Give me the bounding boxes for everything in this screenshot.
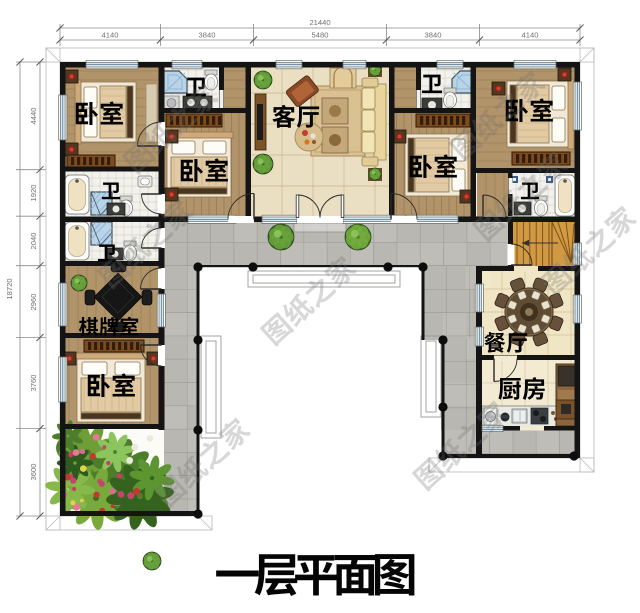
svg-text:3600: 3600 xyxy=(29,464,38,481)
svg-text:21440: 21440 xyxy=(309,18,330,27)
svg-text:2040: 2040 xyxy=(29,233,38,250)
svg-text:3840: 3840 xyxy=(199,31,216,40)
svg-text:1920: 1920 xyxy=(29,185,38,202)
svg-text:4440: 4440 xyxy=(29,108,38,125)
svg-text:2960: 2960 xyxy=(29,294,38,311)
svg-text:4140: 4140 xyxy=(102,31,119,40)
svg-text:3840: 3840 xyxy=(425,31,442,40)
svg-text:5480: 5480 xyxy=(312,31,329,40)
svg-text:4140: 4140 xyxy=(522,31,539,40)
svg-text:3760: 3760 xyxy=(29,375,38,392)
svg-text:18720: 18720 xyxy=(5,278,14,299)
